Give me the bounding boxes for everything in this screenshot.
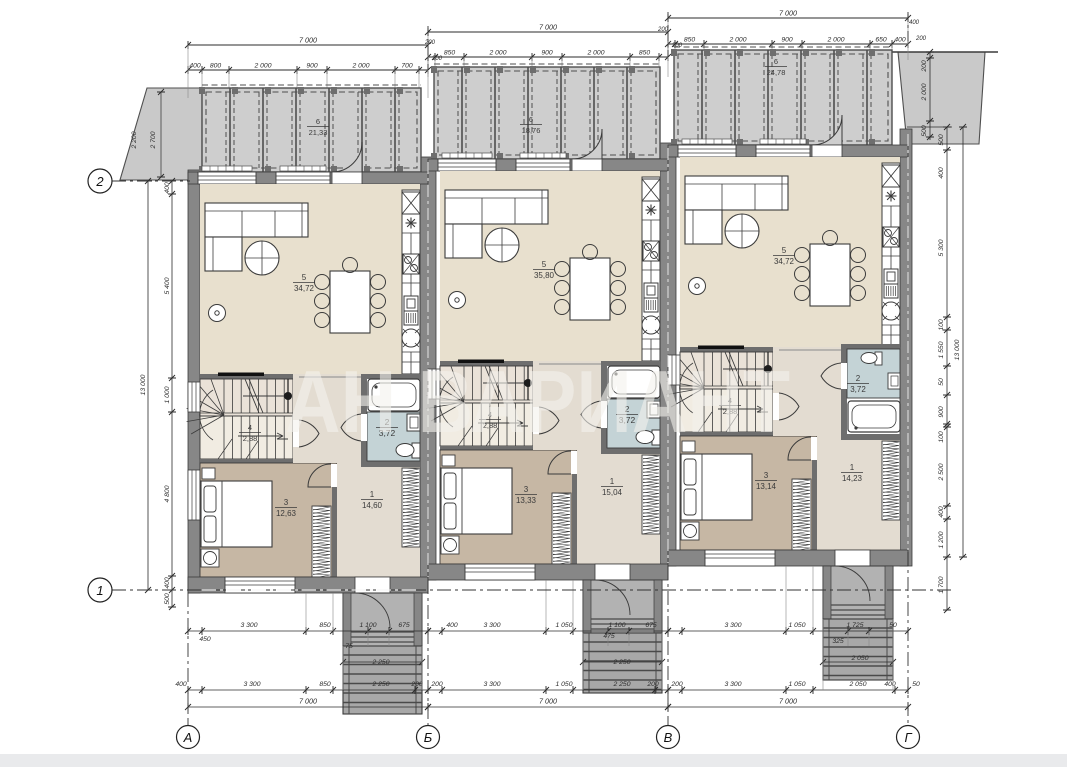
svg-text:34,72: 34,72 — [294, 284, 315, 293]
svg-text:13,14: 13,14 — [756, 482, 777, 491]
svg-text:5 400: 5 400 — [164, 277, 171, 294]
svg-text:1: 1 — [850, 463, 855, 472]
svg-text:21,33: 21,33 — [309, 128, 328, 137]
svg-text:50: 50 — [938, 378, 945, 386]
svg-text:850: 850 — [444, 50, 456, 57]
svg-text:7 000: 7 000 — [299, 36, 317, 45]
svg-text:14,60: 14,60 — [362, 501, 383, 510]
svg-text:800: 800 — [210, 63, 222, 70]
svg-text:4: 4 — [248, 423, 252, 432]
svg-text:100: 100 — [938, 319, 945, 331]
svg-text:675: 675 — [645, 622, 657, 629]
svg-text:2 000: 2 000 — [921, 83, 928, 101]
svg-text:1 050: 1 050 — [555, 681, 572, 688]
svg-text:7 000: 7 000 — [299, 697, 317, 706]
svg-text:3 300: 3 300 — [240, 622, 257, 629]
svg-text:3: 3 — [764, 471, 769, 480]
svg-text:50: 50 — [912, 681, 920, 688]
svg-text:400: 400 — [175, 681, 187, 688]
svg-text:7 000: 7 000 — [779, 697, 797, 706]
svg-text:400: 400 — [894, 37, 906, 44]
svg-text:5 300: 5 300 — [938, 239, 945, 256]
svg-text:35,80: 35,80 — [534, 271, 555, 280]
svg-text:3 300: 3 300 — [483, 622, 500, 629]
svg-text:24,78: 24,78 — [767, 68, 786, 77]
svg-text:12,63: 12,63 — [276, 509, 297, 518]
svg-text:13 000: 13 000 — [954, 339, 961, 360]
svg-text:650: 650 — [875, 37, 887, 44]
svg-text:850: 850 — [684, 37, 696, 44]
svg-text:5: 5 — [302, 273, 307, 282]
svg-text:850: 850 — [639, 50, 651, 57]
svg-text:2 000: 2 000 — [728, 37, 746, 44]
svg-text:1: 1 — [610, 477, 615, 486]
svg-text:4 800: 4 800 — [164, 485, 171, 502]
svg-text:1 700: 1 700 — [938, 576, 945, 593]
svg-text:400: 400 — [164, 182, 171, 194]
svg-text:400: 400 — [446, 622, 458, 629]
svg-text:7 000: 7 000 — [779, 9, 797, 18]
svg-text:400: 400 — [909, 20, 920, 26]
svg-text:75: 75 — [345, 643, 353, 650]
svg-text:3 300: 3 300 — [724, 622, 741, 629]
svg-text:15,04: 15,04 — [602, 488, 623, 497]
svg-text:5: 5 — [782, 246, 787, 255]
svg-text:1 550: 1 550 — [938, 341, 945, 358]
svg-text:2: 2 — [856, 374, 861, 383]
svg-text:475: 475 — [603, 633, 615, 640]
svg-text:1 725: 1 725 — [846, 622, 863, 629]
svg-text:1 000: 1 000 — [164, 386, 171, 403]
svg-text:900: 900 — [781, 37, 793, 44]
svg-text:А: А — [183, 730, 193, 745]
svg-text:1 050: 1 050 — [788, 681, 805, 688]
svg-text:3: 3 — [284, 498, 289, 507]
svg-text:2 050: 2 050 — [848, 681, 866, 688]
svg-text:500: 500 — [164, 593, 171, 605]
svg-text:6: 6 — [529, 115, 533, 124]
svg-text:Б: Б — [424, 730, 433, 745]
svg-text:675: 675 — [398, 622, 410, 629]
svg-text:1 050: 1 050 — [555, 622, 572, 629]
svg-text:13 000: 13 000 — [140, 374, 147, 395]
svg-text:850: 850 — [319, 681, 331, 688]
svg-text:2 000: 2 000 — [253, 63, 271, 70]
svg-text:3 300: 3 300 — [724, 681, 741, 688]
svg-text:2 250: 2 250 — [371, 659, 389, 666]
svg-text:2,88: 2,88 — [243, 434, 258, 443]
svg-text:200: 200 — [410, 681, 423, 688]
svg-text:200: 200 — [671, 43, 683, 49]
svg-text:6: 6 — [774, 57, 778, 66]
svg-text:1: 1 — [370, 490, 375, 499]
svg-text:14,23: 14,23 — [842, 474, 863, 483]
svg-text:500: 500 — [938, 134, 945, 146]
svg-text:34,72: 34,72 — [774, 257, 795, 266]
svg-text:400: 400 — [164, 577, 171, 589]
svg-text:200: 200 — [670, 681, 683, 688]
svg-text:7 000: 7 000 — [539, 23, 557, 32]
svg-text:7 000: 7 000 — [539, 697, 557, 706]
svg-text:400: 400 — [189, 63, 201, 70]
svg-text:400: 400 — [938, 167, 945, 179]
svg-text:5: 5 — [542, 260, 547, 269]
svg-text:850: 850 — [319, 622, 331, 629]
svg-text:2 000: 2 000 — [586, 50, 604, 57]
svg-text:200: 200 — [657, 27, 669, 33]
svg-text:2 250: 2 250 — [371, 681, 389, 688]
svg-text:200: 200 — [915, 36, 927, 42]
svg-text:400: 400 — [938, 506, 945, 518]
svg-text:АН ВАРИАНТ: АН ВАРИАНТ — [285, 352, 790, 451]
svg-text:900: 900 — [938, 406, 945, 418]
svg-text:200: 200 — [424, 40, 436, 46]
svg-text:200: 200 — [646, 681, 659, 688]
svg-text:2 200: 2 200 — [131, 131, 138, 149]
svg-text:200: 200 — [921, 60, 928, 73]
svg-text:1: 1 — [96, 583, 103, 598]
svg-text:2 050: 2 050 — [850, 655, 868, 662]
svg-text:2: 2 — [95, 174, 104, 189]
svg-text:1 050: 1 050 — [788, 622, 805, 629]
svg-text:325: 325 — [832, 638, 844, 645]
svg-text:Г: Г — [904, 730, 912, 745]
svg-text:100: 100 — [938, 431, 945, 443]
svg-text:2 700: 2 700 — [150, 131, 157, 149]
svg-text:2 000: 2 000 — [826, 37, 844, 44]
svg-text:1 100: 1 100 — [359, 622, 376, 629]
svg-text:3: 3 — [524, 485, 529, 494]
svg-text:3,72: 3,72 — [850, 385, 866, 394]
svg-text:2 250: 2 250 — [612, 659, 630, 666]
svg-text:1 200: 1 200 — [938, 531, 945, 548]
svg-text:200: 200 — [431, 56, 443, 62]
svg-text:700: 700 — [401, 63, 413, 70]
svg-text:200: 200 — [430, 681, 443, 688]
svg-text:3 300: 3 300 — [483, 681, 500, 688]
svg-text:3 300: 3 300 — [243, 681, 260, 688]
svg-text:2 000: 2 000 — [351, 63, 369, 70]
svg-text:900: 900 — [306, 63, 318, 70]
svg-text:900: 900 — [541, 50, 553, 57]
svg-text:2 000: 2 000 — [488, 50, 506, 57]
svg-text:2 500: 2 500 — [938, 463, 945, 481]
svg-text:13,33: 13,33 — [516, 496, 537, 505]
svg-text:18,76: 18,76 — [522, 126, 541, 135]
svg-text:6: 6 — [316, 117, 320, 126]
svg-text:2 250: 2 250 — [612, 681, 630, 688]
svg-text:400: 400 — [884, 681, 896, 688]
svg-text:450: 450 — [199, 636, 211, 643]
svg-text:В: В — [664, 730, 673, 745]
svg-text:1 100: 1 100 — [608, 622, 625, 629]
